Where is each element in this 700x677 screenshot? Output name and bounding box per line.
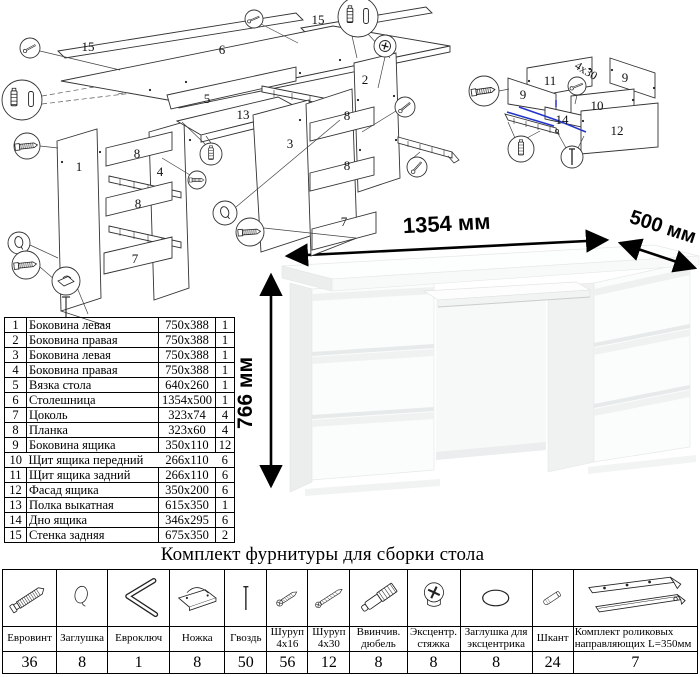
part-qty: 1 xyxy=(216,348,235,363)
nail-icon xyxy=(227,572,265,624)
hardware-qty: 50 xyxy=(225,652,267,674)
part-number: 3 xyxy=(5,348,27,363)
part-name: Вязка стола xyxy=(27,378,159,393)
part-qty: 6 xyxy=(216,453,235,468)
part-size: 750x388 xyxy=(159,348,216,363)
part-number: 11 xyxy=(5,468,27,483)
part-qty: 6 xyxy=(216,468,235,483)
part-label-1: 1 xyxy=(76,159,83,174)
part-number: 7 xyxy=(5,408,27,423)
hardware-names-row: Евровинт Заглушка Евроключ Ножка Гвоздь … xyxy=(3,627,698,652)
table-row: 6Столешница1354x5001 xyxy=(5,393,235,408)
part-qty: 12 xyxy=(216,438,235,453)
part-label-9b: 9 xyxy=(520,87,527,102)
drawer-assembly-diagram: 11 9 9 10 14 12 4x30 xyxy=(469,57,658,168)
parts-table: 1Боковина левая750x3881 2Боковина правая… xyxy=(4,317,235,543)
part-label-11: 11 xyxy=(544,73,557,88)
part-size: 675x350 xyxy=(159,528,216,543)
screw-4x16-icon xyxy=(269,572,306,624)
part-size: 615x350 xyxy=(159,498,216,513)
hardware-name: Ввинчив. дюбель xyxy=(350,627,407,652)
hardware-icon-cell xyxy=(108,570,170,627)
part-name: Планка xyxy=(27,423,159,438)
hardware-name: Комплект роликовых направляющих L=350мм xyxy=(573,627,697,652)
hardware-qty: 1 xyxy=(108,652,170,674)
part-qty: 1 xyxy=(216,333,235,348)
part-size: 750x388 xyxy=(159,318,216,333)
screw-4x30-icon xyxy=(310,572,348,624)
part-name: Стенка задняя xyxy=(27,528,159,543)
part-number: 14 xyxy=(5,513,27,528)
hardware-name: Шуруп 4x30 xyxy=(308,627,350,652)
part-qty: 1 xyxy=(216,378,235,393)
table-row: 3Боковина левая750x3881 xyxy=(5,348,235,363)
part-number: 13 xyxy=(5,498,27,513)
part-label-15b: 15 xyxy=(312,12,325,27)
part-label-8c: 8 xyxy=(344,108,351,123)
hardware-qty: 8 xyxy=(350,652,407,674)
part-name: Полка выкатная xyxy=(27,498,159,513)
hardware-icon-cell xyxy=(573,570,697,627)
hardware-icon-cell xyxy=(532,570,573,627)
table-row: 15Стенка задняя675x3502 xyxy=(5,528,235,543)
hardware-kit-table: Евровинт Заглушка Евроключ Ножка Гвоздь … xyxy=(2,569,698,674)
hardware-kit-title: Комплект фурнитуры для сборки стола xyxy=(0,544,645,566)
table-row: 10Щит ящика передний266x1106 xyxy=(5,453,235,468)
part-label-4: 4 xyxy=(157,164,164,179)
hardware-icon-cell xyxy=(170,570,225,627)
part-size: 323x60 xyxy=(159,423,216,438)
part-name: Боковина правая xyxy=(27,363,159,378)
hardware-icon-cell xyxy=(407,570,460,627)
part-qty: 4 xyxy=(216,408,235,423)
part-label-10: 10 xyxy=(591,98,604,113)
part-size: 750x388 xyxy=(159,363,216,378)
hardware-name: Гвоздь xyxy=(225,627,267,652)
part-number: 9 xyxy=(5,438,27,453)
part-size: 640x260 xyxy=(159,378,216,393)
part-qty: 6 xyxy=(216,483,235,498)
hardware-qty: 56 xyxy=(267,652,308,674)
part-name: Боковина правая xyxy=(27,333,159,348)
part-name: Фасад ящика xyxy=(27,483,159,498)
part-size: 350x110 xyxy=(159,438,216,453)
hardware-icon-cell xyxy=(460,570,532,627)
hardware-quantities-row: 36 8 1 8 50 56 12 8 8 8 24 7 xyxy=(3,652,698,674)
part-qty: 1 xyxy=(216,498,235,513)
cap-icon xyxy=(59,572,105,624)
width-dimension-label: 1354 мм xyxy=(402,209,491,239)
part-name: Столешница xyxy=(27,393,159,408)
hardware-qty: 8 xyxy=(170,652,225,674)
part-qty: 1 xyxy=(216,393,235,408)
part-label-7b: 7 xyxy=(341,214,348,229)
hardware-qty: 8 xyxy=(460,652,532,674)
roller-guides-icon xyxy=(579,572,692,624)
part-name: Боковина левая xyxy=(27,348,159,363)
hardware-icons-row xyxy=(3,570,698,627)
part-label-2: 2 xyxy=(362,72,369,87)
hardware-icon-cell xyxy=(350,570,407,627)
hardware-icon-cell xyxy=(57,570,108,627)
part-name: Дно ящика xyxy=(27,513,159,528)
euro-screw-icon xyxy=(5,572,54,624)
wooden-dowel-icon xyxy=(534,572,571,624)
part-size: 346x295 xyxy=(159,513,216,528)
assembly-instruction-sheet: 1354 мм 500 мм 766 мм xyxy=(0,0,700,677)
part-label-8b: 8 xyxy=(135,196,142,211)
hardware-name: Евровинт xyxy=(3,627,57,652)
part-label-13: 13 xyxy=(237,107,250,122)
hardware-icon-cell xyxy=(225,570,267,627)
hardware-name: Заглушка для эксцентрика xyxy=(460,627,532,652)
eccentric-cam-icon xyxy=(410,572,458,624)
part-label-12: 12 xyxy=(611,123,624,138)
hardware-name: Ножка xyxy=(170,627,225,652)
part-label-7a: 7 xyxy=(132,251,139,266)
depth-dimension-label: 500 мм xyxy=(627,206,699,248)
part-size: 350x200 xyxy=(159,483,216,498)
part-number: 4 xyxy=(5,363,27,378)
foot-icon xyxy=(172,572,222,624)
part-qty: 6 xyxy=(216,513,235,528)
table-row: 5Вязка стола640x2601 xyxy=(5,378,235,393)
part-size: 323x74 xyxy=(159,408,216,423)
hardware-qty: 7 xyxy=(573,652,697,674)
desk-render xyxy=(282,245,699,496)
part-number: 1 xyxy=(5,318,27,333)
part-label-15a: 15 xyxy=(82,39,95,54)
part-qty: 1 xyxy=(216,318,235,333)
part-name: Боковина левая xyxy=(27,318,159,333)
part-number: 12 xyxy=(5,483,27,498)
part-label-14: 14 xyxy=(556,112,570,127)
eccentric-cap-icon xyxy=(463,572,528,624)
part-number: 8 xyxy=(5,423,27,438)
part-qty: 4 xyxy=(216,423,235,438)
part-name: Боковина ящика xyxy=(27,438,159,453)
hex-key-icon xyxy=(111,572,167,624)
hardware-qty: 24 xyxy=(532,652,573,674)
part-name: Щит ящика передний xyxy=(27,453,159,468)
table-row: 14Дно ящика346x2956 xyxy=(5,513,235,528)
hardware-qty: 8 xyxy=(407,652,460,674)
part-size: 266x110 xyxy=(159,468,216,483)
table-row: 12Фасад ящика350x2006 xyxy=(5,483,235,498)
part-number: 15 xyxy=(5,528,27,543)
part-name: Щит ящика задний xyxy=(27,468,159,483)
part-label-6: 6 xyxy=(219,42,226,57)
part-label-3: 3 xyxy=(287,136,294,151)
table-row: 11Щит ящика задний266x1106 xyxy=(5,468,235,483)
part-label-8d: 8 xyxy=(344,158,351,173)
part-qty: 2 xyxy=(216,528,235,543)
hardware-icon-cell xyxy=(3,570,57,627)
hardware-icon-cell xyxy=(308,570,350,627)
part-label-5: 5 xyxy=(204,91,211,106)
table-row: 4Боковина правая750x3881 xyxy=(5,363,235,378)
hardware-qty: 36 xyxy=(3,652,57,674)
screw-in-dowel-icon xyxy=(353,572,405,624)
hardware-icon-cell xyxy=(267,570,308,627)
table-row: 7Цоколь323x744 xyxy=(5,408,235,423)
hardware-name: Шуруп 4x16 xyxy=(267,627,308,652)
hardware-name: Евроключ xyxy=(108,627,170,652)
table-row: 13Полка выкатная615x3501 xyxy=(5,498,235,513)
hardware-name: Эксцентр. стяжка xyxy=(407,627,460,652)
part-number: 6 xyxy=(5,393,27,408)
table-row: 2Боковина правая750x3881 xyxy=(5,333,235,348)
hardware-qty: 12 xyxy=(308,652,350,674)
table-row: 8Планка323x604 xyxy=(5,423,235,438)
table-row: 1Боковина левая750x3881 xyxy=(5,318,235,333)
part-label-9a: 9 xyxy=(622,70,629,85)
part-label-8a: 8 xyxy=(134,146,141,161)
part-number: 10 xyxy=(5,453,27,468)
part-name: Цоколь xyxy=(27,408,159,423)
part-number: 2 xyxy=(5,333,27,348)
hardware-name: Шкант xyxy=(532,627,573,652)
hardware-name: Заглушка xyxy=(57,627,108,652)
part-size: 750x388 xyxy=(159,333,216,348)
part-number: 5 xyxy=(5,378,27,393)
height-dimension-label: 766 мм xyxy=(234,357,257,429)
table-row: 9Боковина ящика350x11012 xyxy=(5,438,235,453)
hardware-qty: 8 xyxy=(57,652,108,674)
part-size: 266x110 xyxy=(159,453,216,468)
part-qty: 1 xyxy=(216,363,235,378)
part-size: 1354x500 xyxy=(159,393,216,408)
